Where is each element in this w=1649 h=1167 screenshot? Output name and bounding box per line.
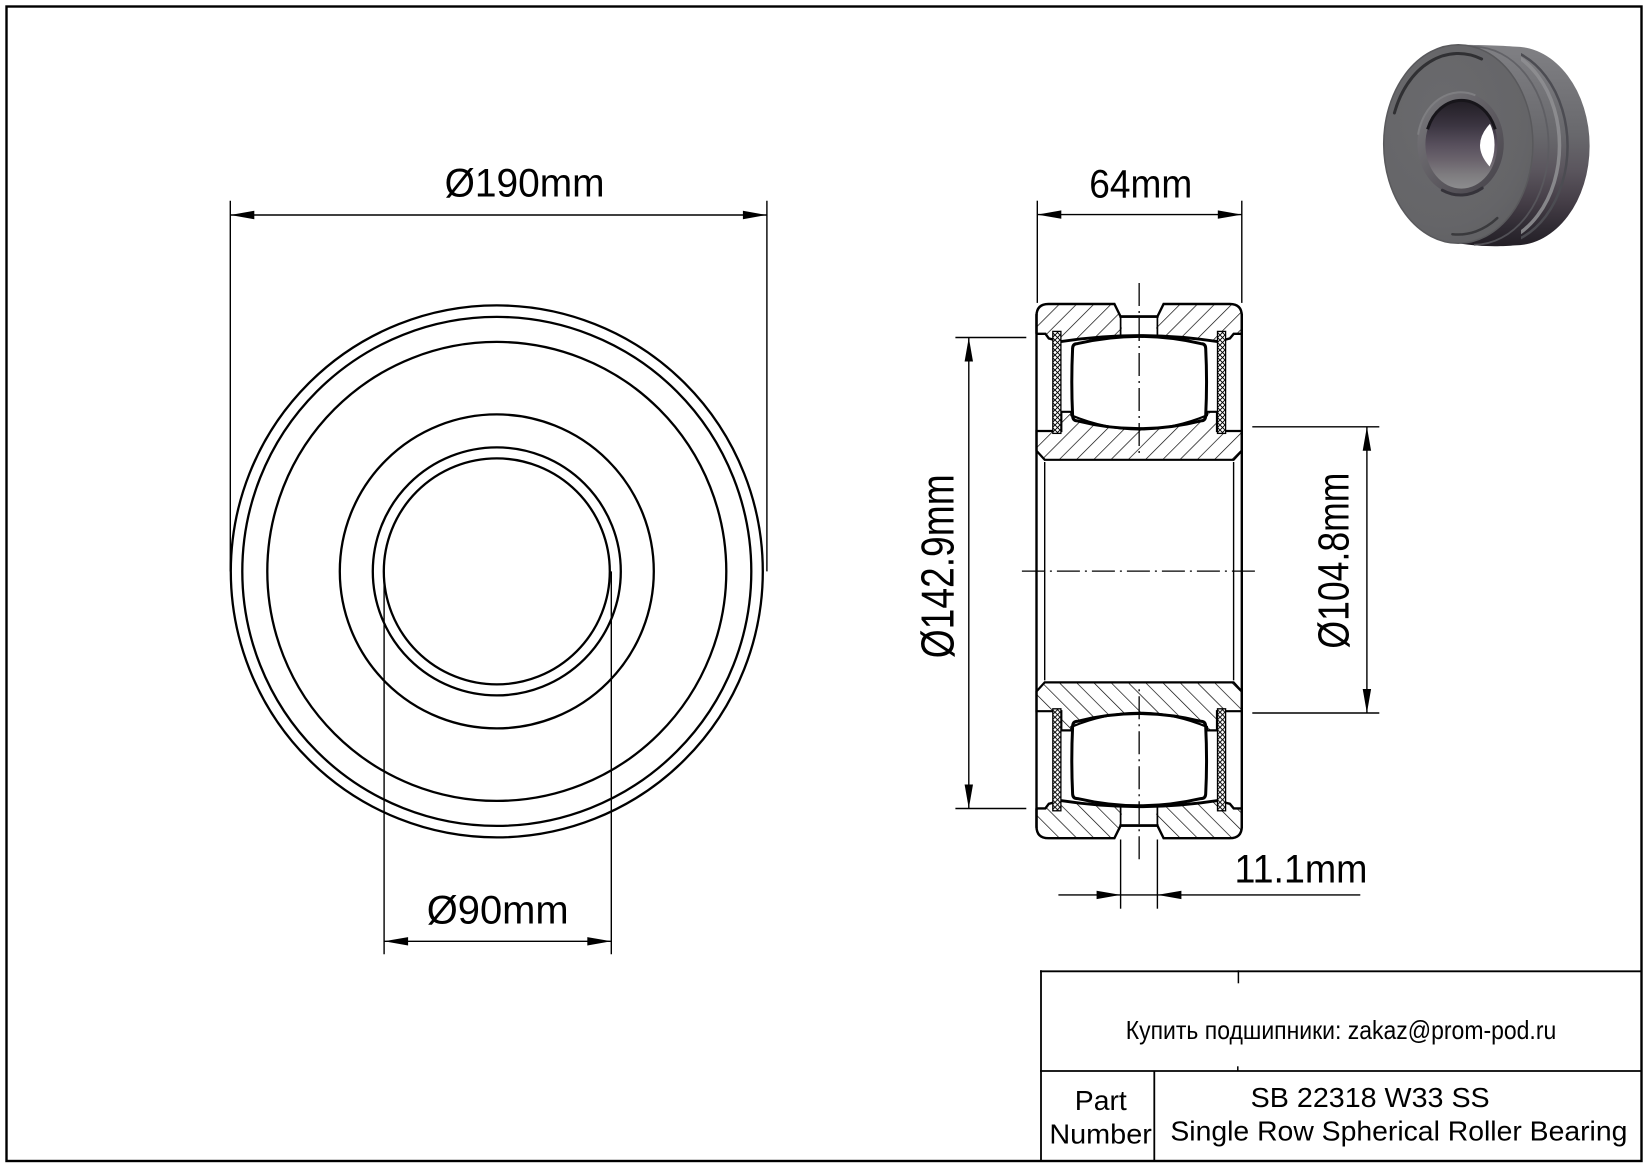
- svg-text:64mm: 64mm: [1089, 163, 1192, 207]
- svg-text:Ø190mm: Ø190mm: [445, 162, 605, 206]
- svg-text:Ø104.8mm: Ø104.8mm: [1309, 473, 1358, 649]
- svg-text:Number: Number: [1049, 1119, 1152, 1150]
- svg-text:Part: Part: [1075, 1085, 1127, 1116]
- svg-text:Ø90mm: Ø90mm: [427, 888, 569, 932]
- svg-text:Ø142.9mm: Ø142.9mm: [912, 474, 964, 658]
- svg-text:SB 22318 W33 SS: SB 22318 W33 SS: [1251, 1082, 1490, 1113]
- svg-text:Купить подшипники: zakaz@prom-: Купить подшипники: zakaz@prom-pod.ru: [1126, 1015, 1557, 1045]
- svg-text:Single Row Spherical Roller Be: Single Row Spherical Roller Bearing: [1170, 1116, 1627, 1147]
- svg-text:11.1mm: 11.1mm: [1235, 847, 1368, 891]
